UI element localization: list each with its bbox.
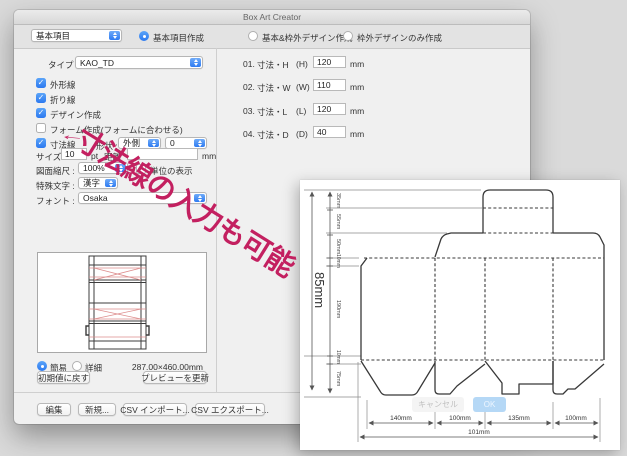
dim-row-axis: (L) [296,106,306,116]
radio-create-both-label: 基本&枠外デザイン作成 [262,32,353,44]
window-title: Box Art Creator [243,12,301,22]
checkbox-outline-label: 外形線 [50,79,76,91]
checkbox-dimension-line[interactable] [36,138,46,148]
special-char-select-value: 漢字 [83,177,100,189]
dim-row-no: 01. [243,59,255,69]
radio-create-basic-label: 基本項目作成 [153,32,204,44]
radio-create-both[interactable] [248,31,258,41]
dim-row-name: 寸法・W [257,82,291,94]
dim-row-axis: (W) [296,82,310,92]
preview-box [37,252,207,353]
dim-w-input[interactable]: 110 [313,79,346,91]
type-select-value: KAO_TD [80,58,114,68]
height-segment-label: 35mm [335,193,341,209]
special-char-label: 特殊文字 : [36,180,75,192]
dim-row-unit: mm [350,59,364,69]
checkbox-design[interactable] [36,108,46,118]
select-stepper-icon [194,139,205,147]
cancel-button[interactable]: キャンセル [412,397,464,412]
dim-row-unit: mm [350,82,364,92]
checkbox-outline[interactable] [36,78,46,88]
dim-h-input[interactable]: 120 [313,56,346,68]
preview-thumbnail [38,253,206,352]
width-segment-label: 140mm [390,415,412,422]
dim-d-input[interactable]: 40 [313,126,346,138]
dim-row-axis: (D) [296,129,308,139]
checkbox-form[interactable] [36,123,46,133]
type-label: タイプ : [48,59,78,71]
size-label: サイズ [36,151,61,163]
preset-select-value: 基本項目 [36,30,70,42]
height-segment-label: 10mm [335,350,341,364]
font-label: フォント : [36,195,75,207]
preset-select[interactable]: 基本項目 [31,29,122,42]
height-segment-label: 55mm [335,214,341,230]
radio-preview-simple[interactable] [37,361,47,371]
edit-button[interactable]: 編集 [37,403,71,416]
radio-preview-detail[interactable] [72,361,82,371]
overall-height-label: 85mm [312,272,327,308]
new-button[interactable]: 新規... [78,403,116,416]
window-titlebar[interactable]: Box Art Creator [14,10,530,25]
type-select[interactable]: KAO_TD [75,56,203,69]
select-stepper-icon [109,31,120,40]
checkbox-foldline-label: 折り線 [50,94,76,106]
height-segment-label: 10mm [335,254,341,268]
dim-row-no: 02. [243,82,255,92]
distance-unit-label: mm [202,151,216,161]
dim-row-no: 04. [243,129,255,139]
dim-row-name: 寸法・H [257,59,289,71]
radio-create-outer-only-label: 枠外デザインのみ作成 [357,32,442,44]
width-segment-label: 100mm [565,415,587,422]
dieline-image-panel: 85mm 35mm 55mm 50mm 10mm 190mm 10mm 75mm… [300,180,620,450]
select-stepper-icon [190,58,201,67]
csv-import-button[interactable]: CSV インポート... [123,403,187,416]
offset-select-value: 0 [170,138,175,148]
update-preview-button[interactable]: プレビューを更新 [143,371,207,384]
select-stepper-icon [148,139,159,147]
dim-row-name: 寸法・L [257,106,287,118]
width-segment-label: 100mm [449,415,471,422]
dim-row-no: 03. [243,106,255,116]
height-segment-label: 75mm [335,371,341,387]
dim-row-axis: (H) [296,59,308,69]
desktop: { "window": { "title": "Box Art Creator"… [0,0,627,456]
width-segment-label: 135mm [508,415,530,422]
dim-row-name: 寸法・D [257,129,289,141]
dim-l-input[interactable]: 120 [313,103,346,115]
dim-row-unit: mm [350,129,364,139]
dim-row-unit: mm [350,106,364,116]
radio-create-outer-only[interactable] [343,31,353,41]
radio-create-basic[interactable] [139,31,149,41]
ok-button[interactable]: OK [473,397,506,412]
csv-export-button[interactable]: CSV エクスポート... [195,403,265,416]
height-segment-label: 50mm [335,239,341,255]
font-select-value: Osaka [83,193,108,203]
reset-defaults-button[interactable]: 初期値に戻す [37,371,90,384]
height-segment-label: 190mm [335,300,341,319]
checkbox-foldline[interactable] [36,93,46,103]
overall-width-label: 101mm [468,429,490,436]
scale-label: 図面縮尺 : [36,165,75,177]
